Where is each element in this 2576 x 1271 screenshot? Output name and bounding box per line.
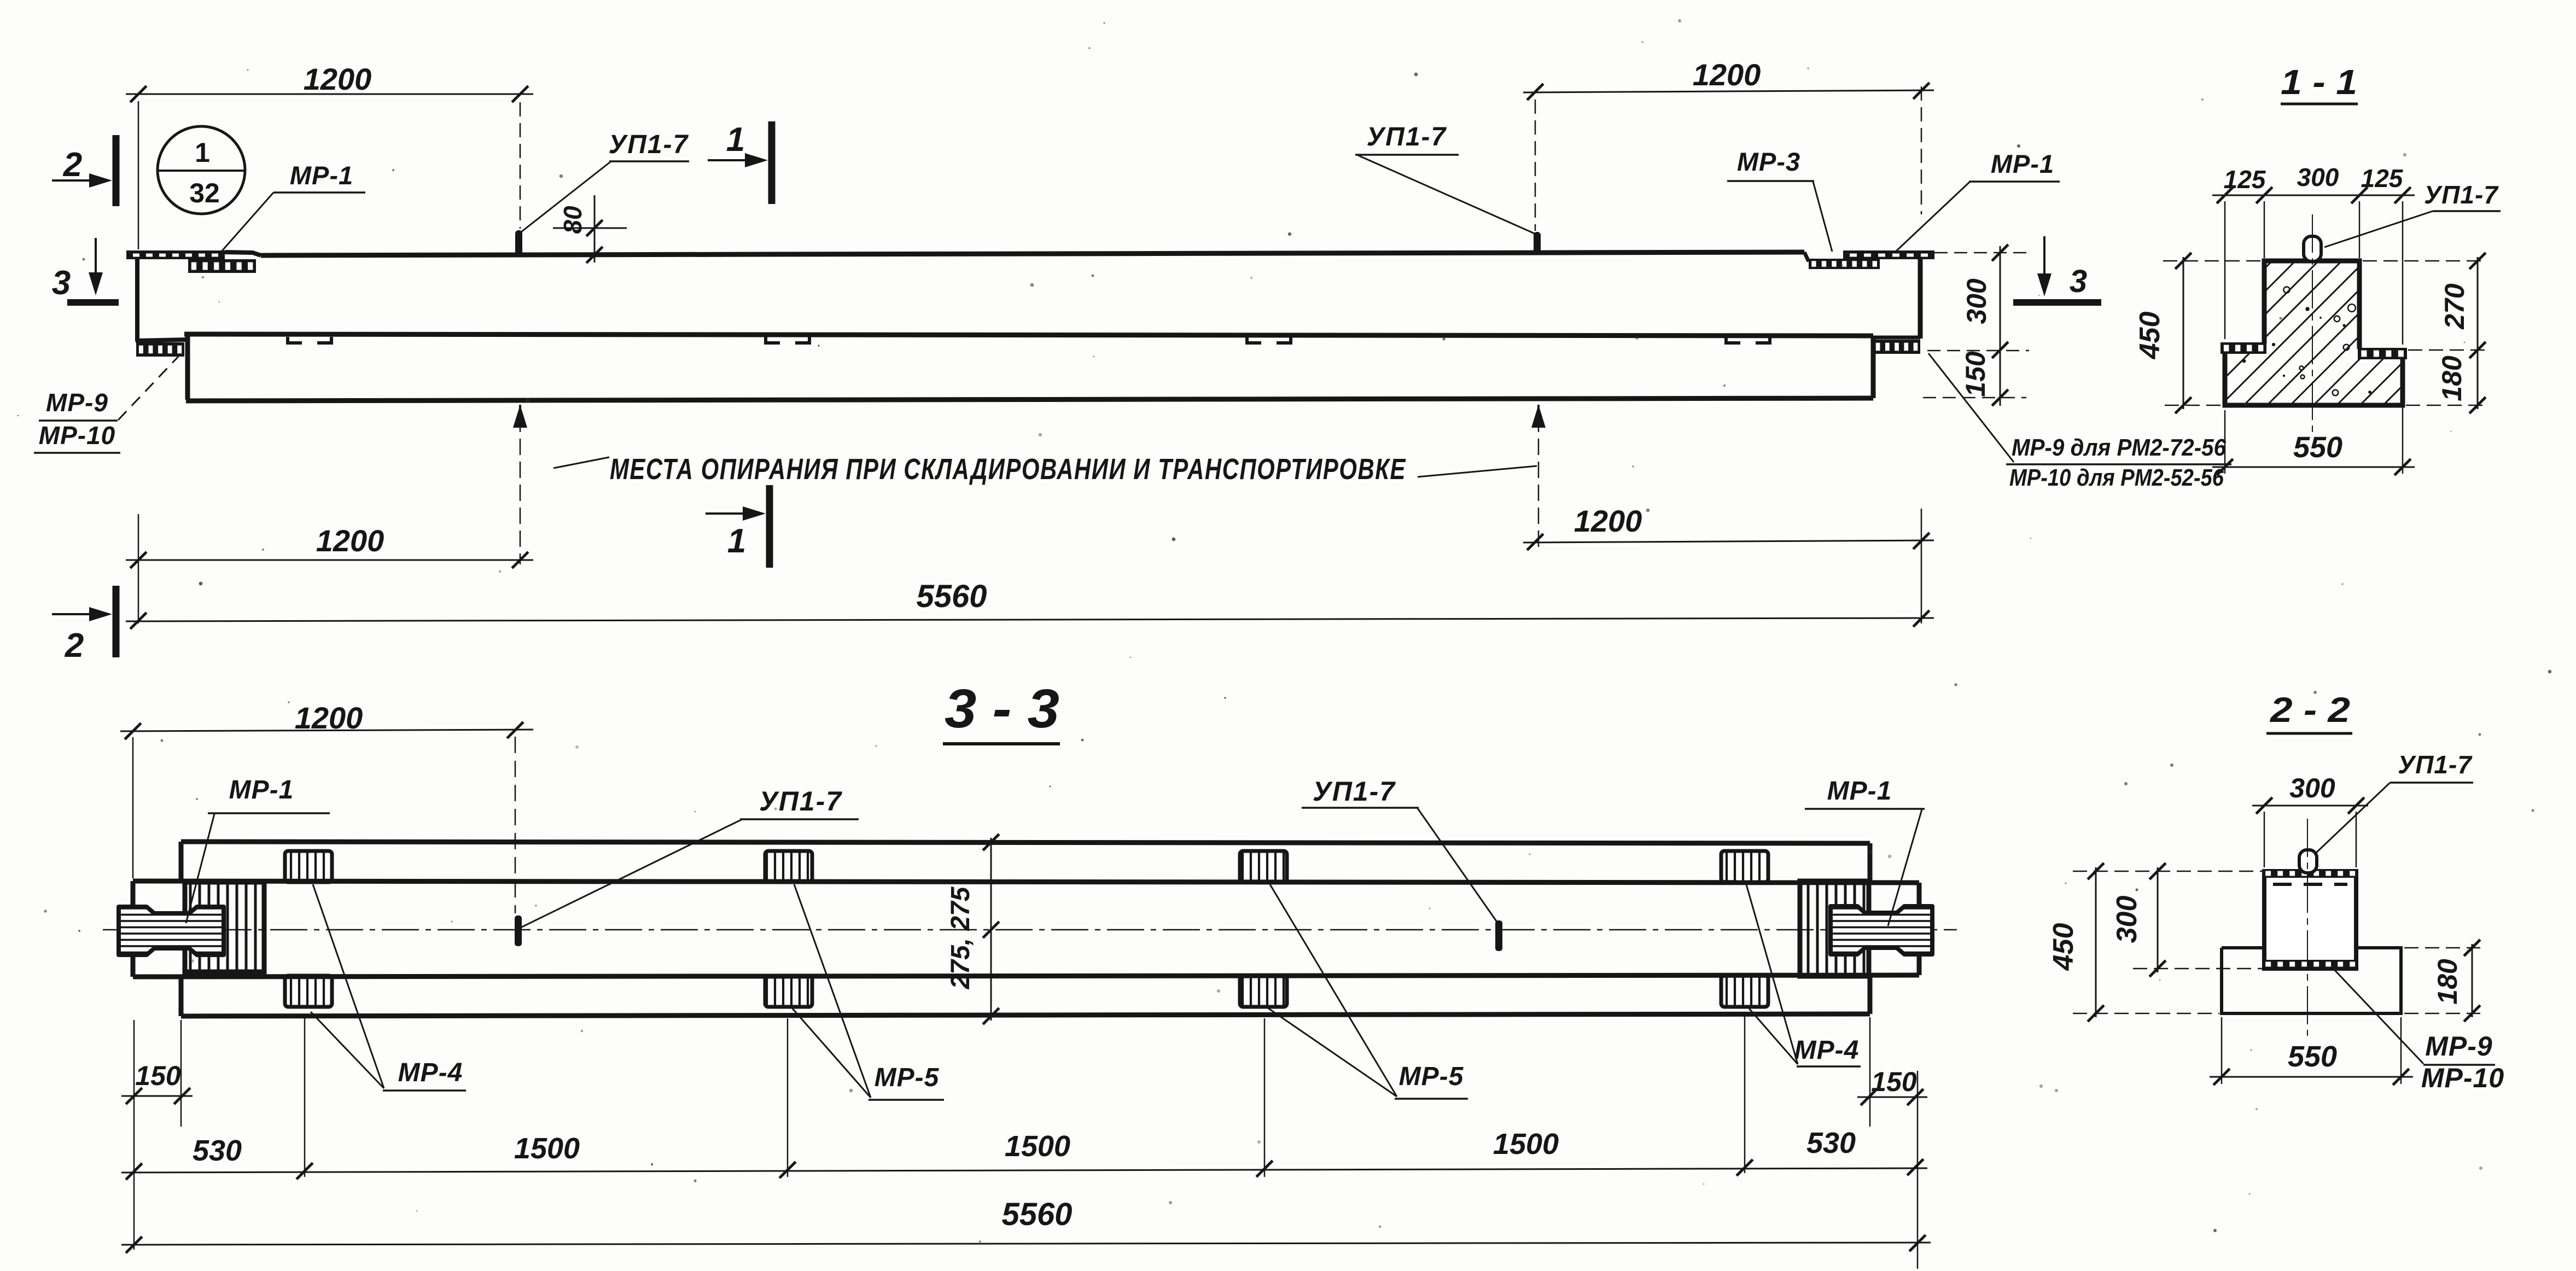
svg-text:УП1-7: УП1-7 <box>759 786 842 817</box>
svg-text:1200: 1200 <box>1693 57 1761 92</box>
svg-text:УП1-7: УП1-7 <box>1367 123 1447 151</box>
svg-text:1500: 1500 <box>1493 1128 1559 1161</box>
svg-text:МР-1: МР-1 <box>290 161 353 190</box>
svg-text:МР-9: МР-9 <box>2425 1031 2492 1062</box>
svg-text:530: 530 <box>193 1134 242 1167</box>
svg-text:МР-4: МР-4 <box>1794 1036 1860 1065</box>
svg-text:1200: 1200 <box>304 62 372 96</box>
svg-text:530: 530 <box>1806 1127 1856 1159</box>
svg-text:550: 550 <box>2288 1040 2337 1073</box>
svg-text:МР-9 для РМ2-72-56: МР-9 для РМ2-72-56 <box>2012 434 2226 461</box>
svg-text:МР-10: МР-10 <box>2421 1063 2504 1093</box>
svg-text:МР-4: МР-4 <box>398 1058 463 1087</box>
svg-text:МР-1: МР-1 <box>229 776 294 804</box>
svg-text:2: 2 <box>63 146 82 184</box>
svg-text:3: 3 <box>2070 264 2087 299</box>
svg-text:МР-1: МР-1 <box>1991 149 2054 178</box>
svg-text:3: 3 <box>52 264 71 302</box>
svg-text:450: 450 <box>2048 923 2079 971</box>
svg-text:125: 125 <box>2224 165 2266 194</box>
svg-text:32: 32 <box>189 178 220 208</box>
svg-text:270: 270 <box>2439 283 2470 330</box>
svg-text:125: 125 <box>2361 164 2404 193</box>
svg-text:300: 300 <box>1961 278 1992 324</box>
svg-text:450: 450 <box>2134 312 2166 360</box>
svg-text:80: 80 <box>558 206 587 234</box>
svg-text:МР-10: МР-10 <box>39 421 115 450</box>
svg-text:5560: 5560 <box>1001 1197 1072 1232</box>
svg-text:УП1-7: УП1-7 <box>1313 776 1396 807</box>
svg-text:1200: 1200 <box>316 523 384 558</box>
svg-text:5560: 5560 <box>916 579 987 614</box>
svg-text:1200: 1200 <box>1574 504 1642 538</box>
svg-text:МЕСТА ОПИРАНИЯ ПРИ СКЛАДИРОВАН: МЕСТА ОПИРАНИЯ ПРИ СКЛАДИРОВАНИИ И ТРАНС… <box>610 453 1406 486</box>
svg-text:1 - 1: 1 - 1 <box>2281 62 2357 102</box>
svg-text:УП1-7: УП1-7 <box>609 130 689 159</box>
svg-text:МР-3: МР-3 <box>1737 147 1800 176</box>
svg-text:2 - 2: 2 - 2 <box>2270 690 2350 730</box>
svg-text:1200: 1200 <box>295 701 363 735</box>
svg-text:УП1-7: УП1-7 <box>2424 180 2499 209</box>
svg-text:1500: 1500 <box>514 1132 580 1165</box>
svg-text:180: 180 <box>2432 959 2463 1005</box>
svg-text:МР-1: МР-1 <box>1827 777 1892 806</box>
svg-text:300: 300 <box>2111 896 2143 943</box>
svg-text:2: 2 <box>65 627 84 664</box>
svg-text:550: 550 <box>2293 431 2342 464</box>
svg-text:275, 275: 275, 275 <box>946 886 975 989</box>
svg-text:1: 1 <box>726 121 745 159</box>
svg-text:3 - 3: 3 - 3 <box>945 678 1059 739</box>
svg-text:300: 300 <box>2289 773 2335 803</box>
svg-text:1500: 1500 <box>1005 1130 1070 1163</box>
svg-text:МР-9: МР-9 <box>46 388 108 417</box>
svg-text:МР-10 для РМ2-52-56: МР-10 для РМ2-52-56 <box>2009 464 2224 491</box>
svg-text:300: 300 <box>2297 163 2339 191</box>
svg-text:1: 1 <box>195 137 210 168</box>
svg-text:МР-5: МР-5 <box>875 1063 940 1092</box>
svg-text:150: 150 <box>135 1060 181 1091</box>
svg-text:150: 150 <box>1871 1066 1917 1097</box>
svg-text:МР-5: МР-5 <box>1399 1062 1464 1091</box>
svg-text:УП1-7: УП1-7 <box>2398 750 2473 779</box>
svg-text:150: 150 <box>1960 351 1991 397</box>
svg-text:180: 180 <box>2437 355 2467 401</box>
svg-text:1: 1 <box>727 522 746 560</box>
